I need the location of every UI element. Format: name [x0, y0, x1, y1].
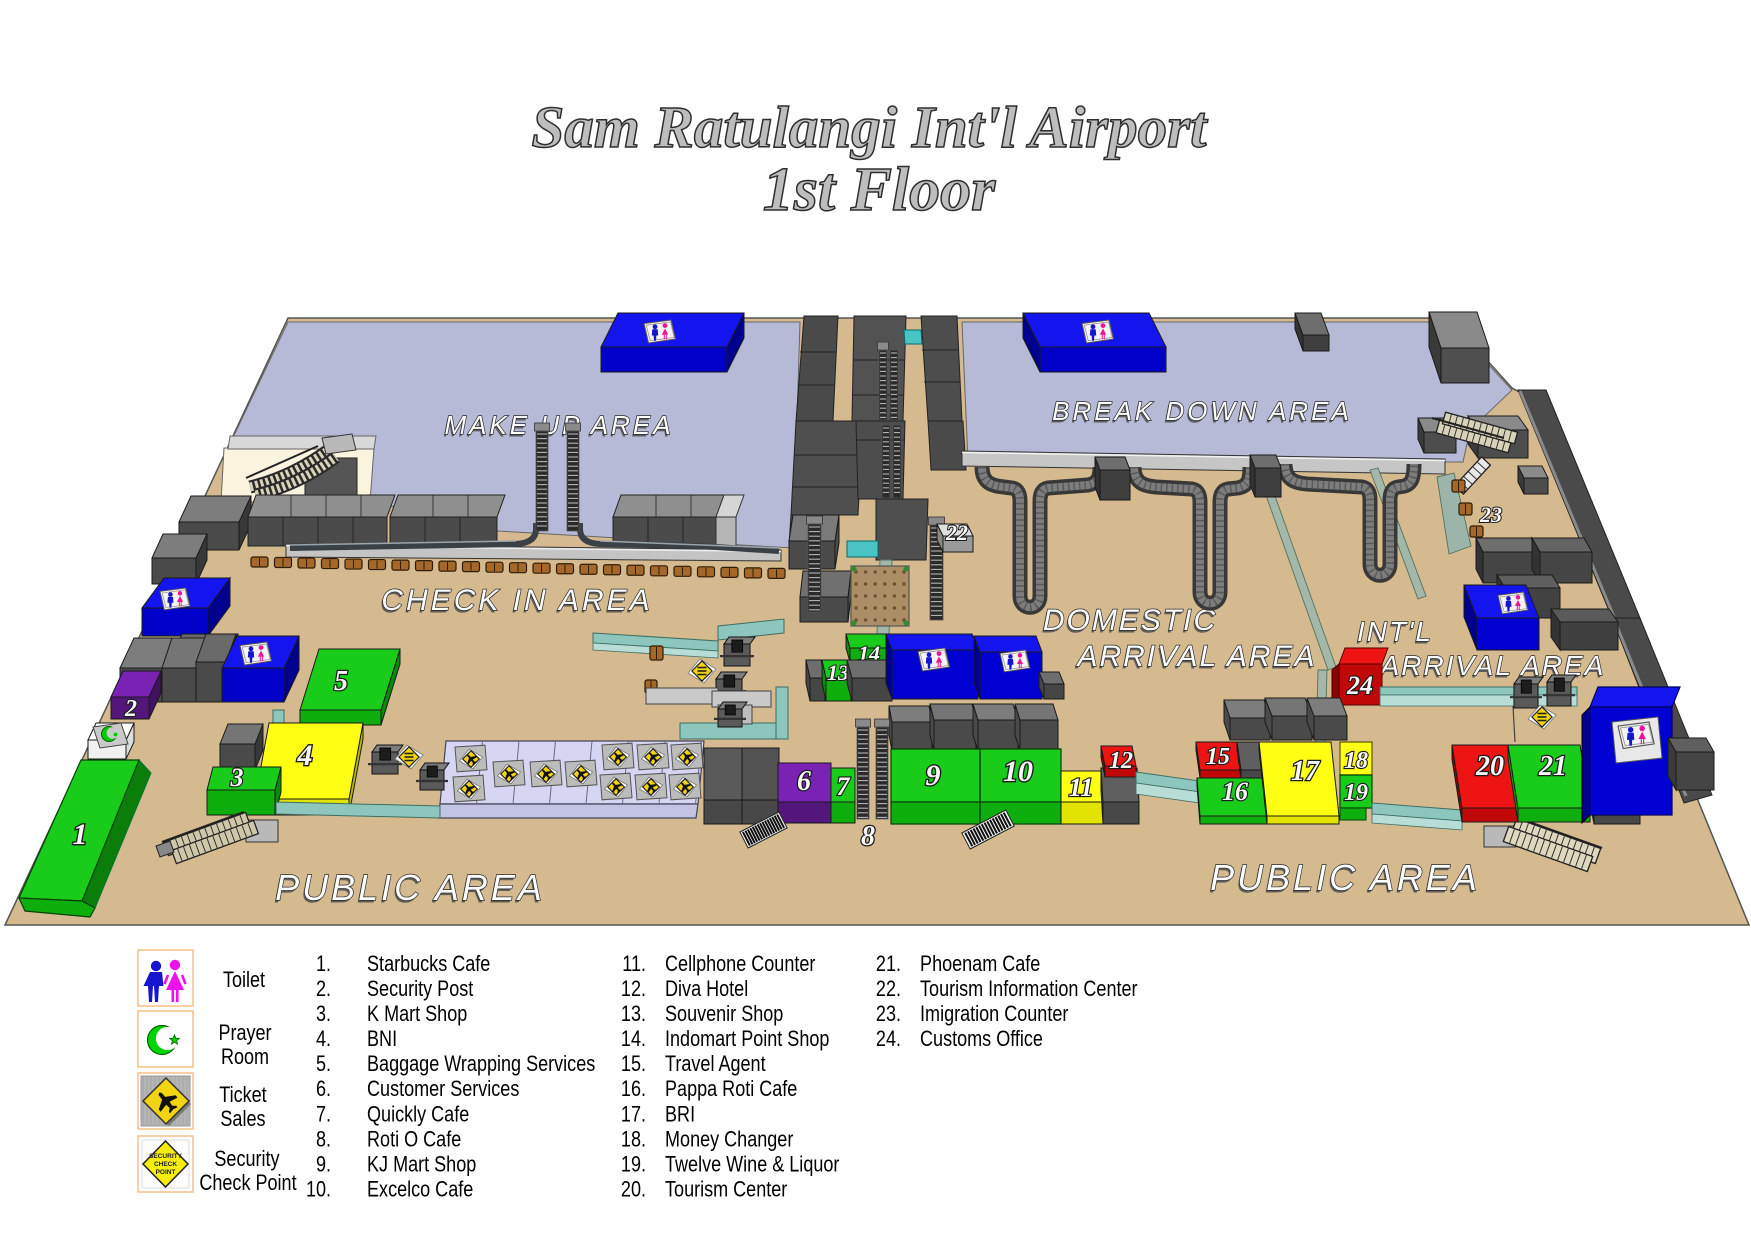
svg-text:Security: Security: [214, 1147, 280, 1171]
svg-text:11.: 11.: [622, 952, 646, 976]
svg-text:Indomart Point Shop: Indomart Point Shop: [665, 1028, 829, 1052]
svg-text:1st Floor: 1st Floor: [763, 156, 996, 224]
svg-text:21.: 21.: [876, 952, 901, 976]
svg-text:Customer Services: Customer Services: [367, 1078, 519, 1102]
svg-text:7.: 7.: [316, 1103, 331, 1127]
svg-text:13: 13: [827, 660, 849, 685]
svg-text:PUBLIC AREA: PUBLIC AREA: [1210, 857, 1480, 898]
svg-text:6.: 6.: [316, 1078, 331, 1102]
svg-text:23: 23: [1479, 502, 1502, 527]
svg-text:Prayer: Prayer: [218, 1021, 271, 1045]
svg-text:3: 3: [230, 763, 244, 792]
svg-text:17: 17: [1291, 756, 1320, 787]
svg-text:10: 10: [1003, 755, 1033, 788]
svg-text:22.: 22.: [876, 977, 901, 1001]
svg-text:BNI: BNI: [367, 1028, 397, 1052]
svg-text:15.: 15.: [621, 1053, 646, 1077]
svg-text:18: 18: [1344, 748, 1368, 774]
svg-text:Security Post: Security Post: [367, 977, 474, 1001]
svg-text:12: 12: [1109, 748, 1133, 774]
svg-text:BRI: BRI: [665, 1103, 695, 1127]
svg-text:16: 16: [1222, 777, 1248, 806]
svg-text:Phoenam Cafe: Phoenam Cafe: [920, 952, 1040, 976]
svg-text:Twelve Wine & Liquor: Twelve Wine & Liquor: [665, 1153, 840, 1177]
svg-text:17.: 17.: [621, 1103, 646, 1127]
svg-text:13.: 13.: [621, 1003, 646, 1027]
svg-text:MAKE UP AREA: MAKE UP AREA: [444, 410, 673, 440]
svg-text:2: 2: [124, 696, 137, 722]
svg-text:Souvenir Shop: Souvenir Shop: [665, 1003, 783, 1027]
svg-text:Toilet: Toilet: [223, 968, 265, 992]
svg-text:21: 21: [1538, 751, 1567, 782]
svg-text:2.: 2.: [316, 977, 331, 1001]
svg-text:8.: 8.: [316, 1128, 331, 1152]
svg-text:Tourism Information Center: Tourism Information Center: [920, 977, 1138, 1001]
svg-text:24.: 24.: [876, 1028, 901, 1052]
svg-text:20.: 20.: [621, 1178, 646, 1202]
svg-text:Excelco Cafe: Excelco Cafe: [367, 1178, 473, 1202]
svg-text:6: 6: [797, 766, 811, 797]
svg-text:7: 7: [837, 772, 851, 801]
svg-text:Money Changer: Money Changer: [665, 1128, 794, 1152]
svg-text:BREAK DOWN AREA: BREAK DOWN AREA: [1052, 396, 1352, 426]
svg-text:3.: 3.: [316, 1003, 331, 1027]
svg-text:24: 24: [1346, 671, 1373, 700]
svg-text:POINT: POINT: [156, 1169, 176, 1176]
svg-text:18.: 18.: [621, 1128, 646, 1152]
svg-text:Pappa Roti Cafe: Pappa Roti Cafe: [665, 1078, 797, 1102]
svg-text:5.: 5.: [316, 1053, 331, 1077]
svg-text:Customs Office: Customs Office: [920, 1028, 1043, 1052]
svg-text:Roti O Cafe: Roti O Cafe: [367, 1128, 461, 1152]
svg-text:KJ Mart Shop: KJ Mart Shop: [367, 1153, 476, 1177]
svg-text:19.: 19.: [621, 1153, 646, 1177]
svg-text:K Mart Shop: K Mart Shop: [367, 1003, 467, 1027]
svg-text:INT'L: INT'L: [1357, 616, 1433, 647]
svg-text:22: 22: [945, 520, 968, 545]
svg-text:Starbucks Cafe: Starbucks Cafe: [367, 952, 490, 976]
svg-text:9: 9: [926, 759, 941, 792]
svg-text:19: 19: [1344, 780, 1368, 806]
svg-text:11: 11: [1069, 773, 1094, 802]
svg-text:15: 15: [1206, 744, 1230, 770]
svg-text:16.: 16.: [621, 1078, 646, 1102]
svg-text:23.: 23.: [876, 1003, 901, 1027]
svg-text:ARRIVAL AREA: ARRIVAL AREA: [1075, 640, 1316, 673]
svg-text:Diva Hotel: Diva Hotel: [665, 977, 748, 1001]
svg-text:Cellphone Counter: Cellphone Counter: [665, 952, 816, 976]
svg-text:20: 20: [1475, 751, 1504, 782]
svg-text:Baggage Wrapping Services: Baggage Wrapping Services: [367, 1053, 595, 1077]
svg-text:14.: 14.: [621, 1028, 646, 1052]
svg-text:9.: 9.: [316, 1153, 331, 1177]
svg-text:5: 5: [334, 666, 348, 697]
svg-text:SECURITY: SECURITY: [149, 1153, 183, 1160]
svg-text:Sam Ratulangi Int'l Airport: Sam Ratulangi Int'l Airport: [532, 94, 1209, 160]
svg-text:12.: 12.: [621, 977, 646, 1001]
svg-text:Check Point: Check Point: [199, 1171, 297, 1195]
svg-text:Room: Room: [221, 1045, 269, 1069]
svg-text:Ticket: Ticket: [219, 1083, 267, 1107]
svg-text:8: 8: [861, 821, 875, 852]
svg-text:4.: 4.: [316, 1028, 331, 1052]
svg-text:Sales: Sales: [220, 1107, 265, 1131]
svg-text:4: 4: [297, 739, 313, 772]
svg-text:Travel Agent: Travel Agent: [665, 1053, 766, 1077]
svg-text:Imigration Counter: Imigration Counter: [920, 1003, 1069, 1027]
svg-text:CHECK IN AREA: CHECK IN AREA: [381, 584, 652, 617]
svg-text:DOMESTIC: DOMESTIC: [1043, 604, 1217, 637]
svg-text:1: 1: [73, 818, 88, 851]
svg-text:Quickly Cafe: Quickly Cafe: [367, 1103, 469, 1127]
svg-text:CHECK: CHECK: [154, 1161, 177, 1168]
svg-text:10.: 10.: [306, 1178, 331, 1202]
svg-text:PUBLIC AREA: PUBLIC AREA: [275, 867, 545, 908]
svg-text:Tourism Center: Tourism Center: [665, 1178, 788, 1202]
svg-text:1.: 1.: [316, 952, 331, 976]
